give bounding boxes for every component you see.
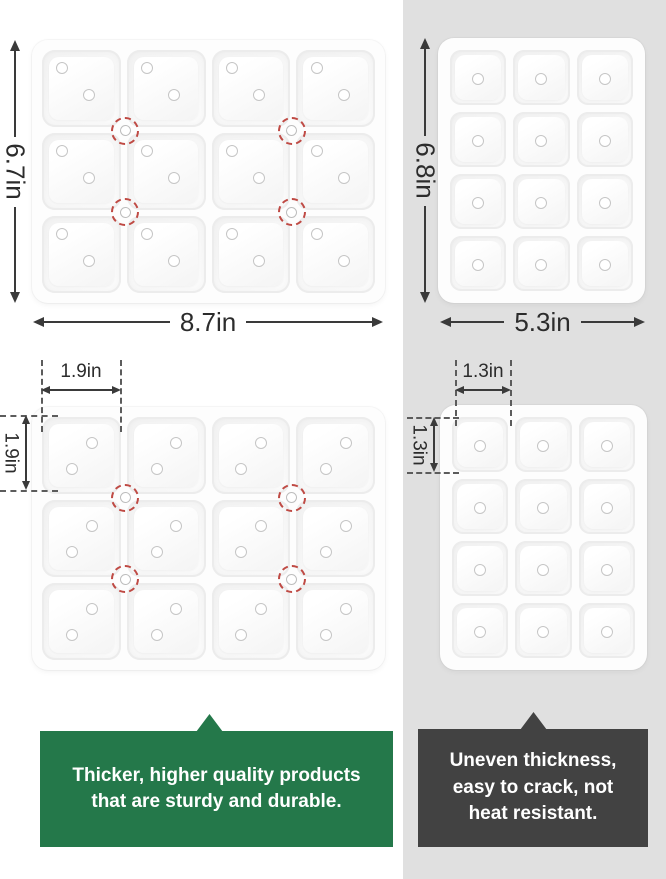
dim-bad-cell-width: 1.3in <box>455 362 511 395</box>
junction-highlight-icon <box>278 198 306 226</box>
junction-hole-icon <box>286 207 297 218</box>
tray-compartment <box>127 583 206 660</box>
tray-compartment <box>296 133 375 210</box>
tray-compartment <box>127 500 206 577</box>
tray-compartment <box>212 133 291 210</box>
good-callout-line-1: Thicker, higher quality products <box>72 763 360 790</box>
vent-hole-icon <box>474 502 486 514</box>
vent-hole-icon <box>338 255 350 267</box>
dim-good-height: 6.7in <box>2 40 28 303</box>
tray-compartment <box>296 50 375 127</box>
vent-hole-icon <box>472 197 484 209</box>
tray-compartment <box>42 216 121 293</box>
dim-bad-width-label: 5.3in <box>504 307 580 338</box>
vent-hole-icon <box>599 197 611 209</box>
vent-hole-icon <box>255 520 267 532</box>
tray-compartment <box>296 417 375 494</box>
arrow-up-icon <box>22 415 30 424</box>
dim-good-width: 8.7in <box>33 308 383 336</box>
tray-compartment-grid <box>42 417 375 660</box>
tray-compartment <box>127 216 206 293</box>
vent-hole-icon <box>340 603 352 615</box>
vent-hole-icon <box>86 437 98 449</box>
vent-hole-icon <box>535 259 547 271</box>
tray-compartment <box>577 112 633 167</box>
junction-highlight-icon <box>111 117 139 145</box>
arrow-left-icon <box>41 386 50 394</box>
guide-line <box>0 490 58 492</box>
arrow-left-icon <box>455 386 464 394</box>
dim-good-cell-height: 1.9in <box>1 415 32 490</box>
tray-compartment <box>513 174 569 229</box>
tray-compartment <box>515 417 571 472</box>
tray-compartment <box>450 112 506 167</box>
vent-hole-icon <box>170 603 182 615</box>
tray-compartment <box>452 603 508 658</box>
vent-hole-icon <box>170 520 182 532</box>
tray-compartment <box>212 417 291 494</box>
vent-hole-icon <box>235 546 247 558</box>
junction-hole-icon <box>286 574 297 585</box>
junction-hole-icon <box>120 574 131 585</box>
dim-bad-height: 6.8in <box>412 38 438 303</box>
vent-hole-icon <box>66 546 78 558</box>
guide-line <box>407 472 459 474</box>
vent-hole-icon <box>474 564 486 576</box>
tray-compartment <box>42 583 121 660</box>
tray-compartment <box>296 216 375 293</box>
bad-callout-line-2: easy to crack, not <box>453 775 614 802</box>
tray-compartment <box>127 50 206 127</box>
vent-hole-icon <box>340 520 352 532</box>
vent-hole-icon <box>537 564 549 576</box>
tray-compartment-grid <box>42 50 375 293</box>
vent-hole-icon <box>599 135 611 147</box>
good-callout-line-2: that are sturdy and durable. <box>91 789 341 816</box>
vent-hole-icon <box>320 629 332 641</box>
tray-compartment <box>127 417 206 494</box>
bad-tray-overall <box>438 38 645 303</box>
vent-hole-icon <box>151 546 163 558</box>
bad-callout-line-3: heat resistant. <box>469 801 598 828</box>
vent-hole-icon <box>535 197 547 209</box>
vent-hole-icon <box>601 502 613 514</box>
arrow-right-icon <box>502 386 511 394</box>
junction-highlight-icon <box>111 198 139 226</box>
vent-hole-icon <box>599 73 611 85</box>
vent-hole-icon <box>253 172 265 184</box>
tray-compartment <box>513 112 569 167</box>
dim-bad-cell-height-label: 1.3in <box>408 424 430 465</box>
vent-hole-icon <box>141 62 153 74</box>
tray-compartment <box>212 500 291 577</box>
vent-hole-icon <box>151 629 163 641</box>
vent-hole-icon <box>338 172 350 184</box>
dim-good-cell-height-label: 1.9in <box>0 432 22 473</box>
junction-hole-icon <box>120 207 131 218</box>
junction-highlight-icon <box>278 484 306 512</box>
dim-bad-cell-height: 1.3in <box>409 417 440 472</box>
vent-hole-icon <box>255 603 267 615</box>
good-tray-overall <box>32 40 385 303</box>
good-tray-cell-dims <box>32 407 385 670</box>
vent-hole-icon <box>86 603 98 615</box>
vent-hole-icon <box>255 437 267 449</box>
vent-hole-icon <box>472 259 484 271</box>
vent-hole-icon <box>537 440 549 452</box>
tray-compartment <box>212 583 291 660</box>
arrow-up-icon <box>420 38 430 49</box>
tray-compartment <box>42 417 121 494</box>
tray-compartment <box>515 479 571 534</box>
vent-hole-icon <box>340 437 352 449</box>
good-callout: Thicker, higher quality products that ar… <box>40 731 393 847</box>
vent-hole-icon <box>56 228 68 240</box>
vent-hole-icon <box>537 626 549 638</box>
tray-compartment <box>579 541 635 596</box>
vent-hole-icon <box>83 89 95 101</box>
arrow-up-icon <box>430 417 438 426</box>
vent-hole-icon <box>599 259 611 271</box>
tray-compartment <box>577 174 633 229</box>
tray-compartment <box>212 216 291 293</box>
tray-compartment <box>577 236 633 291</box>
vent-hole-icon <box>66 629 78 641</box>
dim-good-width-label: 8.7in <box>170 307 246 338</box>
tray-compartment <box>452 417 508 472</box>
tray-compartment <box>42 500 121 577</box>
arrow-up-icon <box>10 40 20 51</box>
vent-hole-icon <box>537 502 549 514</box>
vent-hole-icon <box>474 440 486 452</box>
vent-hole-icon <box>311 62 323 74</box>
vent-hole-icon <box>474 626 486 638</box>
junction-hole-icon <box>286 492 297 503</box>
arrow-down-icon <box>430 463 438 472</box>
vent-hole-icon <box>168 89 180 101</box>
arrow-left-icon <box>33 317 44 327</box>
vent-hole-icon <box>170 437 182 449</box>
tray-compartment <box>450 236 506 291</box>
vent-hole-icon <box>235 629 247 641</box>
tray-compartment <box>515 541 571 596</box>
vent-hole-icon <box>226 145 238 157</box>
tray-compartment <box>513 236 569 291</box>
tray-compartment <box>42 50 121 127</box>
junction-highlight-icon <box>278 565 306 593</box>
vent-hole-icon <box>168 255 180 267</box>
arrow-down-icon <box>22 481 30 490</box>
vent-hole-icon <box>472 135 484 147</box>
dim-good-height-label: 6.7in <box>0 143 31 199</box>
vent-hole-icon <box>141 145 153 157</box>
junction-highlight-icon <box>111 565 139 593</box>
tray-compartment <box>579 603 635 658</box>
junction-highlight-icon <box>278 117 306 145</box>
tray-compartment <box>127 133 206 210</box>
tray-compartment <box>296 500 375 577</box>
vent-hole-icon <box>320 546 332 558</box>
junction-hole-icon <box>286 125 297 136</box>
tray-compartment <box>579 417 635 472</box>
bad-callout-line-1: Uneven thickness, <box>450 748 617 775</box>
junction-hole-icon <box>120 125 131 136</box>
vent-hole-icon <box>311 228 323 240</box>
vent-hole-icon <box>226 62 238 74</box>
good-callout-pointer-icon <box>196 714 223 732</box>
vent-hole-icon <box>338 89 350 101</box>
vent-hole-icon <box>253 89 265 101</box>
tray-compartment <box>515 603 571 658</box>
dim-bad-height-label: 6.8in <box>410 142 441 198</box>
dim-good-cell-width: 1.9in <box>41 362 121 395</box>
vent-hole-icon <box>56 62 68 74</box>
bad-callout: Uneven thickness, easy to crack, not hea… <box>418 729 648 847</box>
tray-compartment <box>577 50 633 105</box>
dim-bad-cell-width-label: 1.3in <box>455 362 511 382</box>
vent-hole-icon <box>601 626 613 638</box>
tray-compartment <box>513 50 569 105</box>
dim-good-cell-width-label: 1.9in <box>41 362 121 382</box>
junction-hole-icon <box>120 492 131 503</box>
arrow-down-icon <box>10 292 20 303</box>
tray-compartment <box>42 133 121 210</box>
tray-compartment <box>450 174 506 229</box>
tray-compartment <box>579 479 635 534</box>
tray-compartment-grid <box>452 417 635 658</box>
vent-hole-icon <box>141 228 153 240</box>
vent-hole-icon <box>535 73 547 85</box>
vent-hole-icon <box>86 520 98 532</box>
vent-hole-icon <box>320 463 332 475</box>
tray-compartment-grid <box>450 50 633 291</box>
vent-hole-icon <box>83 172 95 184</box>
vent-hole-icon <box>311 145 323 157</box>
arrow-right-icon <box>112 386 121 394</box>
arrow-down-icon <box>420 292 430 303</box>
arrow-right-icon <box>372 317 383 327</box>
arrow-right-icon <box>634 317 645 327</box>
tray-compartment <box>450 50 506 105</box>
dim-bad-width: 5.3in <box>440 308 645 336</box>
bad-tray-cell-dims <box>440 405 647 670</box>
vent-hole-icon <box>472 73 484 85</box>
vent-hole-icon <box>66 463 78 475</box>
arrow-left-icon <box>440 317 451 327</box>
tray-compartment <box>212 50 291 127</box>
vent-hole-icon <box>601 440 613 452</box>
vent-hole-icon <box>151 463 163 475</box>
tray-compartment <box>452 541 508 596</box>
vent-hole-icon <box>226 228 238 240</box>
vent-hole-icon <box>535 135 547 147</box>
vent-hole-icon <box>168 172 180 184</box>
vent-hole-icon <box>601 564 613 576</box>
comparison-infographic: 6.7in 8.7in 6.8in 5.3in 1.9in <box>0 0 666 879</box>
vent-hole-icon <box>253 255 265 267</box>
vent-hole-icon <box>83 255 95 267</box>
vent-hole-icon <box>235 463 247 475</box>
junction-highlight-icon <box>111 484 139 512</box>
vent-hole-icon <box>56 145 68 157</box>
tray-compartment <box>296 583 375 660</box>
tray-compartment <box>452 479 508 534</box>
